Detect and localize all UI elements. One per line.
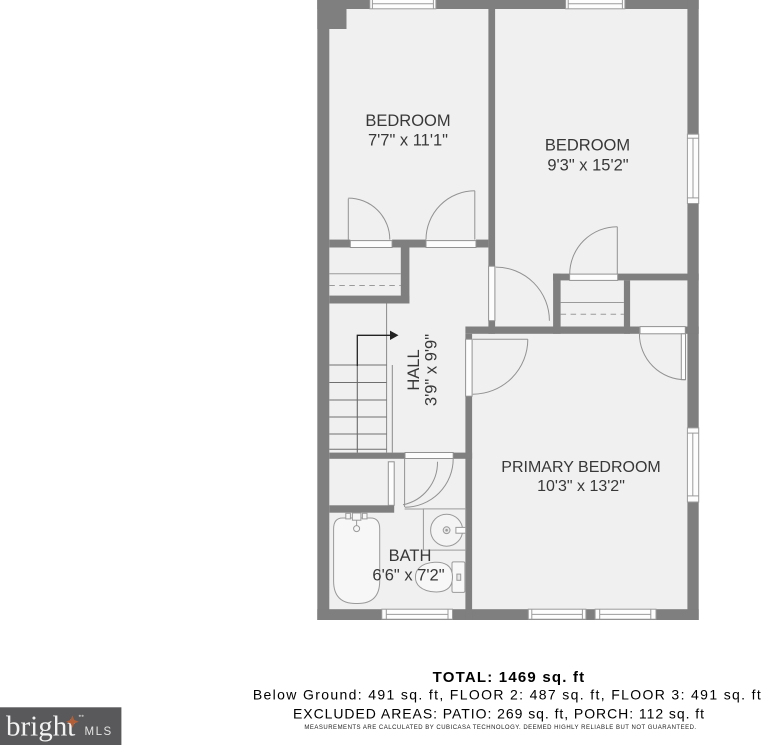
svg-text:BATH: BATH xyxy=(389,547,432,565)
svg-text:MLS: MLS xyxy=(85,726,113,738)
svg-text:7'7" x 11'1": 7'7" x 11'1" xyxy=(368,132,448,150)
svg-text:BEDROOM: BEDROOM xyxy=(545,137,630,155)
svg-text:10'3" x 13'2": 10'3" x 13'2" xyxy=(537,478,625,495)
svg-text:TOTAL: 1469 sq. ft: TOTAL: 1469 sq. ft xyxy=(433,669,586,686)
svg-text:MEASUREMENTS ARE CALCULATED BY: MEASUREMENTS ARE CALCULATED BY CUBICASA … xyxy=(304,725,696,731)
svg-text:6'6" x 7'2": 6'6" x 7'2" xyxy=(372,567,444,585)
svg-text:Below Ground: 491 sq. ft, FLOO: Below Ground: 491 sq. ft, FLOOR 2: 487 s… xyxy=(253,686,762,702)
svg-text:BEDROOM: BEDROOM xyxy=(365,112,450,130)
svg-text:HALL: HALL xyxy=(405,349,423,390)
svg-text:PRIMARY BEDROOM: PRIMARY BEDROOM xyxy=(501,459,660,476)
svg-text:9'3" x 15'2": 9'3" x 15'2" xyxy=(547,156,628,174)
svg-text:bright: bright xyxy=(6,711,75,743)
svg-text:3'9" x 9'9": 3'9" x 9'9" xyxy=(423,334,441,406)
svg-text:EXCLUDED AREAS: PATIO: 269 sq.: EXCLUDED AREAS: PATIO: 269 sq. ft, PORCH… xyxy=(293,705,705,721)
